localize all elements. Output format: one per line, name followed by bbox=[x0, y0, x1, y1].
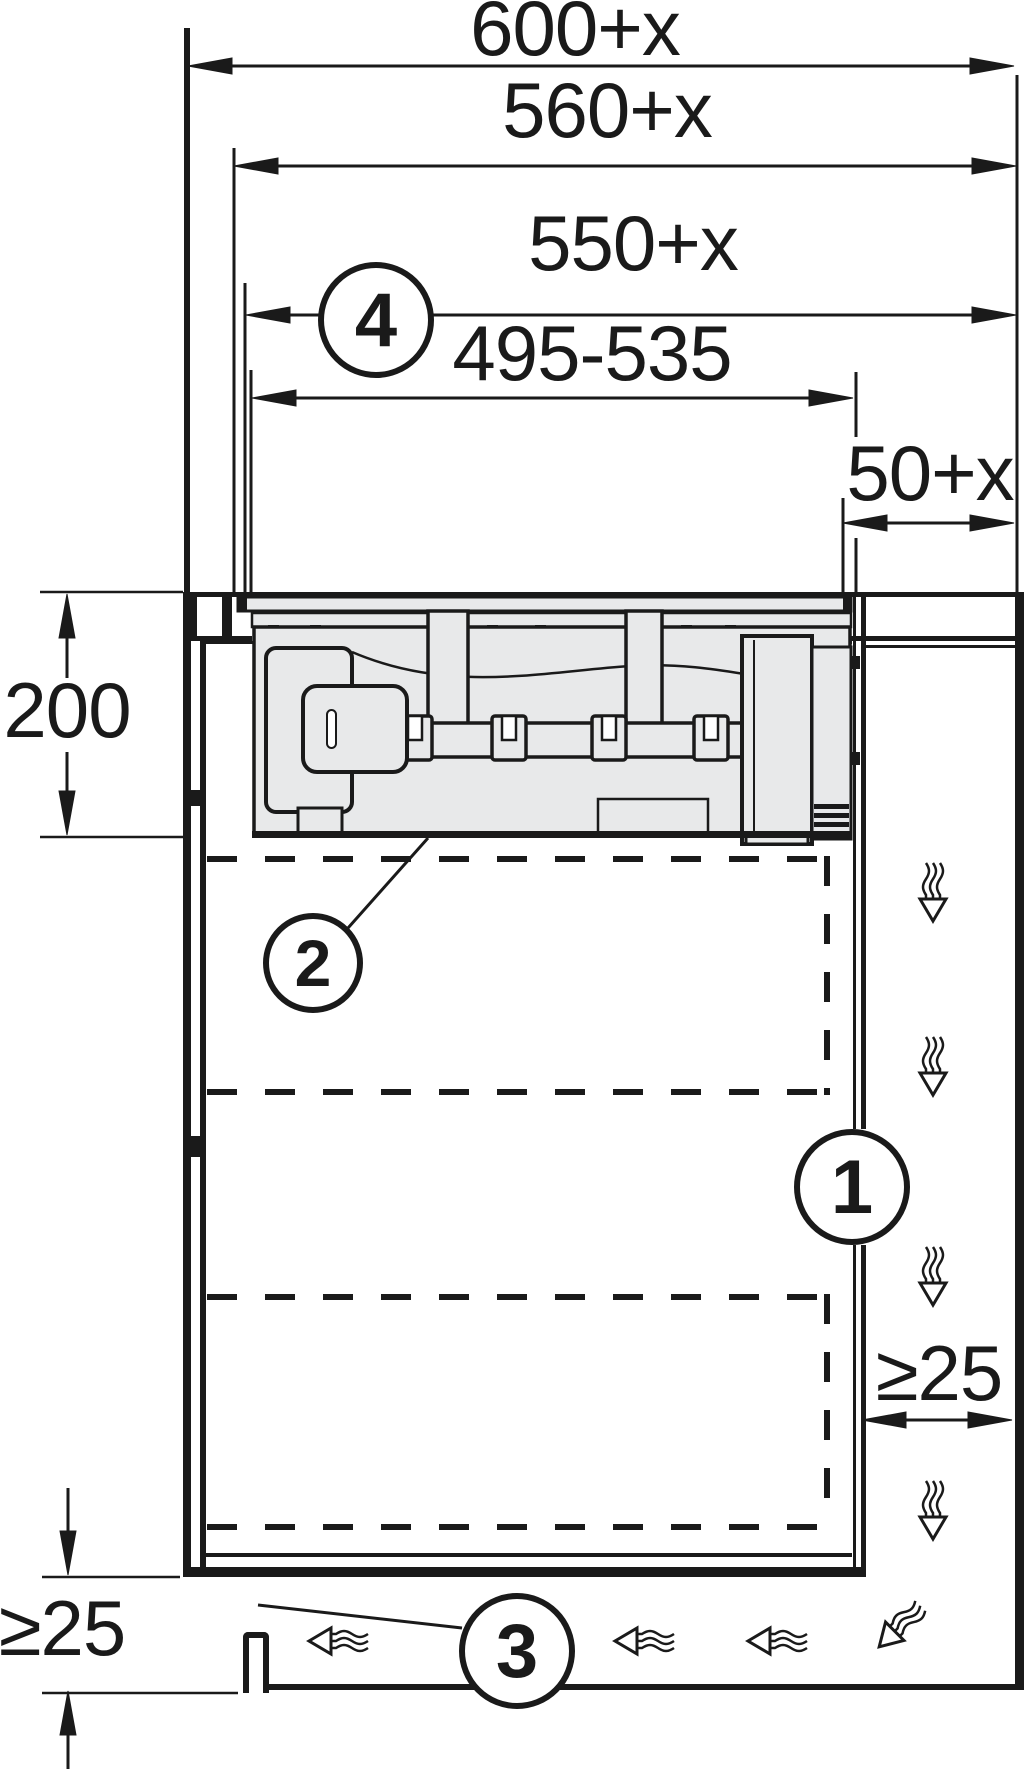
airflow-down-icon bbox=[918, 862, 948, 924]
dim-label-200: 200 bbox=[3, 670, 130, 752]
dim-arrow-50x bbox=[843, 515, 1014, 531]
callout-2-number: 2 bbox=[295, 925, 332, 1001]
plinth-panel bbox=[243, 1632, 269, 1693]
dimension-overlay bbox=[0, 0, 1024, 1769]
callout-2: 2 bbox=[263, 913, 363, 1013]
dim-label-550x: 550+x bbox=[528, 203, 738, 285]
callout-1-number: 1 bbox=[831, 1144, 873, 1231]
airflow-left-icon bbox=[612, 1626, 676, 1656]
callout-4-number: 4 bbox=[355, 277, 397, 364]
leader-callout-2 bbox=[348, 838, 428, 928]
airflow-down-icon bbox=[918, 1246, 948, 1308]
dim-label-min25-side: ≥25 bbox=[876, 1333, 1003, 1415]
installation-diagram: 4 2 1 3 600+x 560+x 550+x 495-535 50+x 2… bbox=[0, 0, 1024, 1769]
airflow-left-icon bbox=[306, 1626, 370, 1656]
dim-label-50x: 50+x bbox=[846, 433, 1013, 515]
callout-4: 4 bbox=[318, 262, 434, 378]
callout-3-number: 3 bbox=[496, 1608, 538, 1695]
dim-label-600x: 600+x bbox=[470, 0, 680, 70]
callout-3: 3 bbox=[459, 1593, 575, 1709]
airflow-down-icon bbox=[918, 1480, 948, 1542]
dim-arrow-560x bbox=[234, 158, 1016, 174]
leader-callout-3 bbox=[258, 1605, 462, 1628]
airflow-down-icon bbox=[918, 1036, 948, 1098]
callout-1: 1 bbox=[794, 1129, 910, 1245]
airflow-left-icon bbox=[745, 1626, 809, 1656]
dim-label-min25-bottom: ≥25 bbox=[0, 1588, 125, 1670]
dim-label-495-535: 495-535 bbox=[452, 313, 731, 395]
dim-label-560x: 560+x bbox=[502, 70, 712, 152]
